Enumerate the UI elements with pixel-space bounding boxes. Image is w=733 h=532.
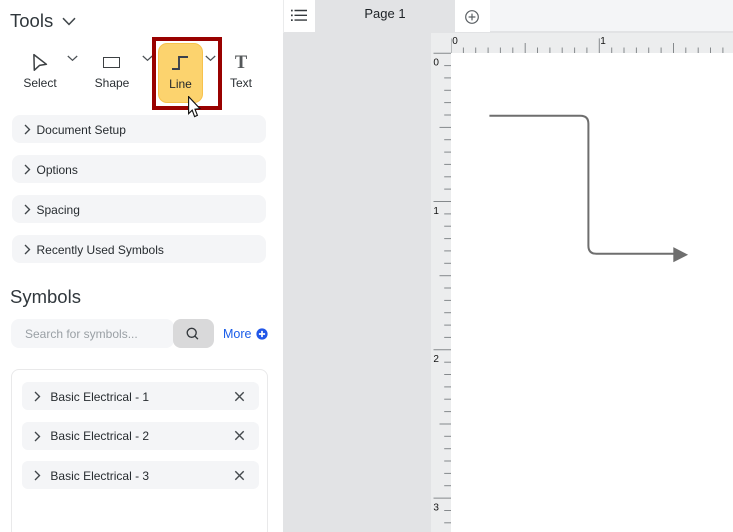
svg-text:2: 2: [433, 354, 439, 365]
svg-text:0: 0: [452, 36, 458, 47]
svg-text:3: 3: [433, 502, 439, 513]
svg-text:1: 1: [600, 36, 606, 47]
svg-text:1: 1: [433, 206, 439, 217]
svg-text:0: 0: [433, 58, 439, 69]
